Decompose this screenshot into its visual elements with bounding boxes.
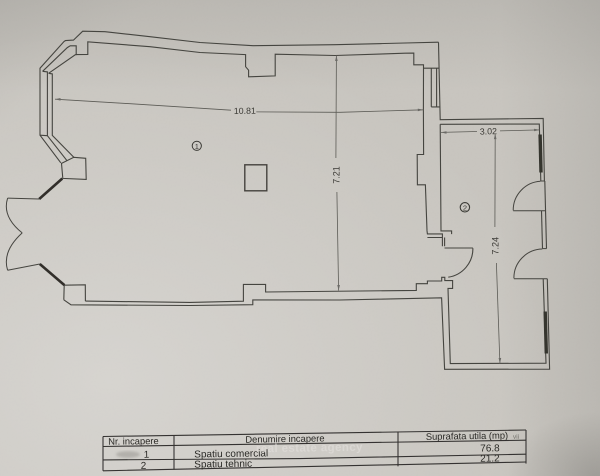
- svg-text:1: 1: [195, 142, 199, 151]
- svg-text:2: 2: [141, 461, 147, 472]
- svg-text:real estate agency: real estate agency: [256, 442, 363, 456]
- svg-text:Suprafata utila (mp): Suprafata utila (mp): [426, 430, 509, 442]
- svg-text:Nr. incapere: Nr. incapere: [108, 435, 159, 447]
- svg-text:10.81: 10.81: [234, 106, 256, 116]
- svg-text:7.24: 7.24: [490, 237, 500, 255]
- svg-text:vii: vii: [513, 434, 519, 441]
- svg-text:Spatiu tehnic: Spatiu tehnic: [194, 459, 252, 471]
- svg-text:3.02: 3.02: [480, 126, 497, 136]
- svg-text:1: 1: [144, 450, 150, 461]
- svg-text:21.2: 21.2: [480, 453, 500, 464]
- svg-text:7.21: 7.21: [332, 166, 342, 184]
- svg-text:2: 2: [463, 204, 467, 213]
